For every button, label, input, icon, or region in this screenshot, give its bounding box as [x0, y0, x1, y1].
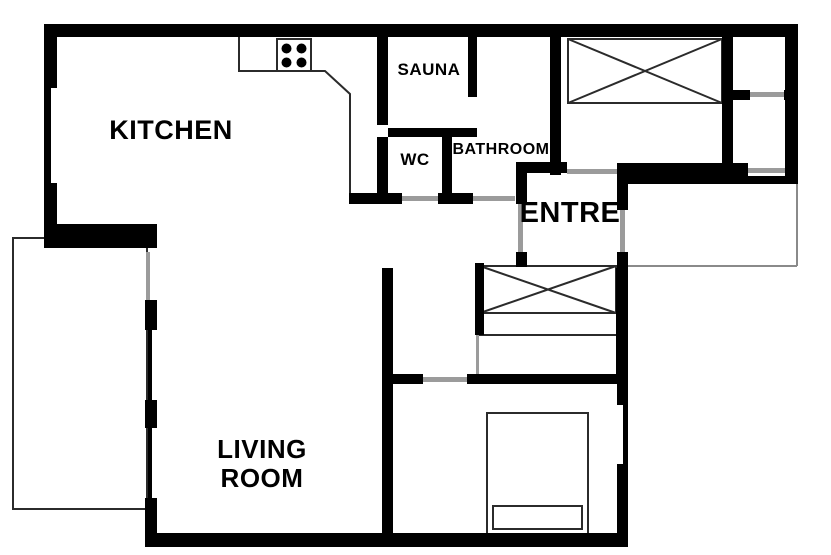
floor-plan: KITCHEN SAUNA WC BATHROOM ENTRE LIVING R…	[0, 0, 831, 555]
wall-segment	[44, 24, 798, 37]
room-label-kitchen: KITCHEN	[91, 115, 251, 146]
wall-segment	[393, 374, 423, 384]
wall-segment	[467, 374, 628, 384]
door-opening	[748, 168, 785, 173]
wall-segment	[722, 90, 750, 100]
wall-segment	[628, 176, 798, 184]
room-label-living-line1: LIVING	[217, 434, 307, 464]
wardrobe-icon	[568, 39, 722, 103]
wall-segment	[145, 533, 628, 547]
wall-segment	[618, 163, 748, 176]
wardrobe-icon	[479, 266, 616, 335]
wall-segment	[438, 193, 473, 204]
wall-segment	[145, 498, 157, 544]
room-label-wc: WC	[390, 150, 440, 170]
wall-segment	[377, 37, 388, 125]
wall-segment	[377, 137, 388, 195]
entrance-door-opening	[567, 169, 622, 174]
window	[623, 405, 628, 464]
wall-segment	[516, 252, 527, 267]
kitchen-counter	[239, 37, 350, 193]
room-label-entre: ENTRE	[510, 197, 630, 230]
terrace	[628, 184, 797, 266]
window	[44, 88, 51, 183]
furniture-layer	[0, 0, 831, 555]
room-label-living-line2: ROOM	[221, 463, 304, 493]
room-label-sauna: SAUNA	[389, 60, 469, 80]
wall-segment	[722, 37, 733, 166]
wall-segment	[617, 252, 628, 268]
door-opening	[750, 92, 784, 97]
wall-segment	[475, 263, 484, 335]
wall-segment	[382, 268, 393, 533]
door-opening	[473, 196, 515, 201]
wall-segment	[616, 268, 628, 384]
wall-segment	[145, 400, 157, 428]
wall-segment	[145, 300, 157, 330]
wall-segment	[44, 24, 57, 88]
wall-segment	[785, 24, 798, 176]
bed-icon	[487, 413, 588, 534]
wall-segment	[617, 384, 628, 405]
wall-segment	[44, 224, 157, 248]
door-opening	[476, 335, 479, 374]
window	[148, 428, 152, 498]
wall-segment	[617, 464, 628, 547]
wall-segment	[388, 128, 477, 137]
balcony	[13, 238, 147, 509]
room-label-living-room: LIVING ROOM	[182, 435, 342, 493]
room-label-bathroom: BATHROOM	[446, 141, 556, 159]
door-opening	[423, 377, 467, 382]
stove-icon	[277, 39, 311, 71]
door-opening	[402, 196, 438, 201]
window	[148, 330, 152, 400]
wall-segment	[349, 193, 402, 204]
wall-segment	[784, 90, 798, 100]
wall-segment	[468, 37, 477, 97]
door-opening	[146, 252, 150, 300]
